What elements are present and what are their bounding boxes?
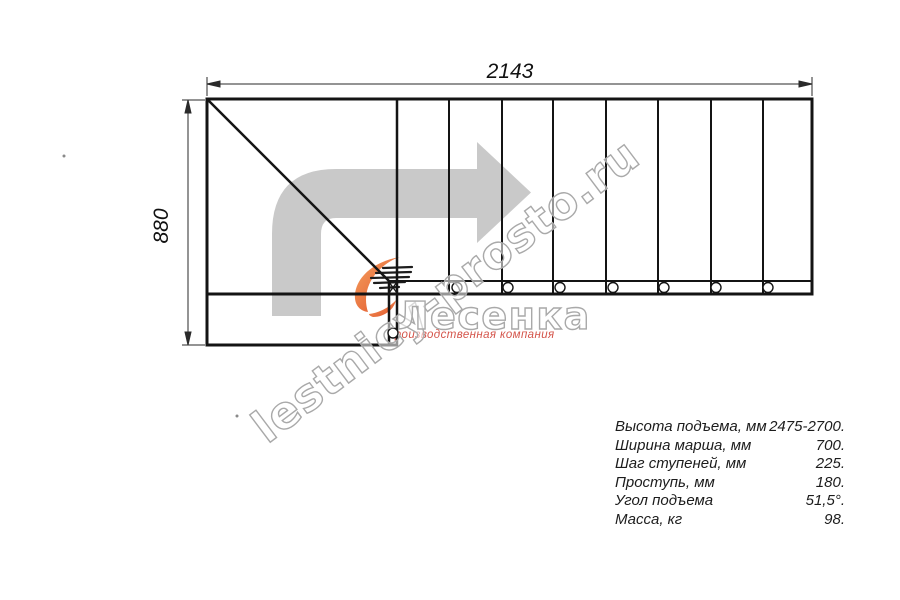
spec-label: Ширина марша, мм <box>615 437 751 456</box>
spec-label: Масса, кг <box>615 511 682 530</box>
spec-value: 2475-2700. <box>769 418 845 437</box>
baluster-circle <box>555 283 565 293</box>
spec-label: Шаг ступеней, мм <box>615 455 746 474</box>
spec-row: Ширина марша, мм 700. <box>615 437 845 456</box>
baluster-circle <box>763 283 773 293</box>
spec-row: Проступь, мм 180. <box>615 474 845 493</box>
print-dot <box>236 415 239 418</box>
spec-value: 180. <box>816 474 845 493</box>
spec-row: Угол подъема 51,5°. <box>615 492 845 511</box>
spec-label: Высота подъема, мм <box>615 418 767 437</box>
dimension-arrowhead <box>799 81 812 87</box>
spec-row: Масса, кг 98. <box>615 511 845 530</box>
dimension-arrowhead <box>185 332 191 345</box>
baluster-circle <box>608 283 618 293</box>
spec-value: 225. <box>816 455 845 474</box>
logo-text-watermark: Лесенка <box>397 294 591 338</box>
baluster-circle <box>711 283 721 293</box>
dimension-arrowhead <box>185 100 191 113</box>
dimension-arrowhead <box>207 81 220 87</box>
spec-row: Высота подъема, мм 2475-2700. <box>615 418 845 437</box>
spec-label: Угол подъема <box>615 492 713 511</box>
spec-value: 700. <box>816 437 845 456</box>
baluster-circle <box>503 283 513 293</box>
spec-table: Высота подъема, мм 2475-2700. Ширина мар… <box>615 418 845 530</box>
baluster-circle <box>659 283 669 293</box>
left-dimension-label: 880 <box>150 208 173 243</box>
spec-value: 51,5°. <box>806 492 845 511</box>
top-dimension-label: 2143 <box>486 60 534 83</box>
print-dot <box>63 155 66 158</box>
spec-row: Шаг ступеней, мм 225. <box>615 455 845 474</box>
spec-value: 98. <box>824 511 845 530</box>
spec-label: Проступь, мм <box>615 474 715 493</box>
stair-plan-drawing: производственная компания <box>0 0 900 600</box>
